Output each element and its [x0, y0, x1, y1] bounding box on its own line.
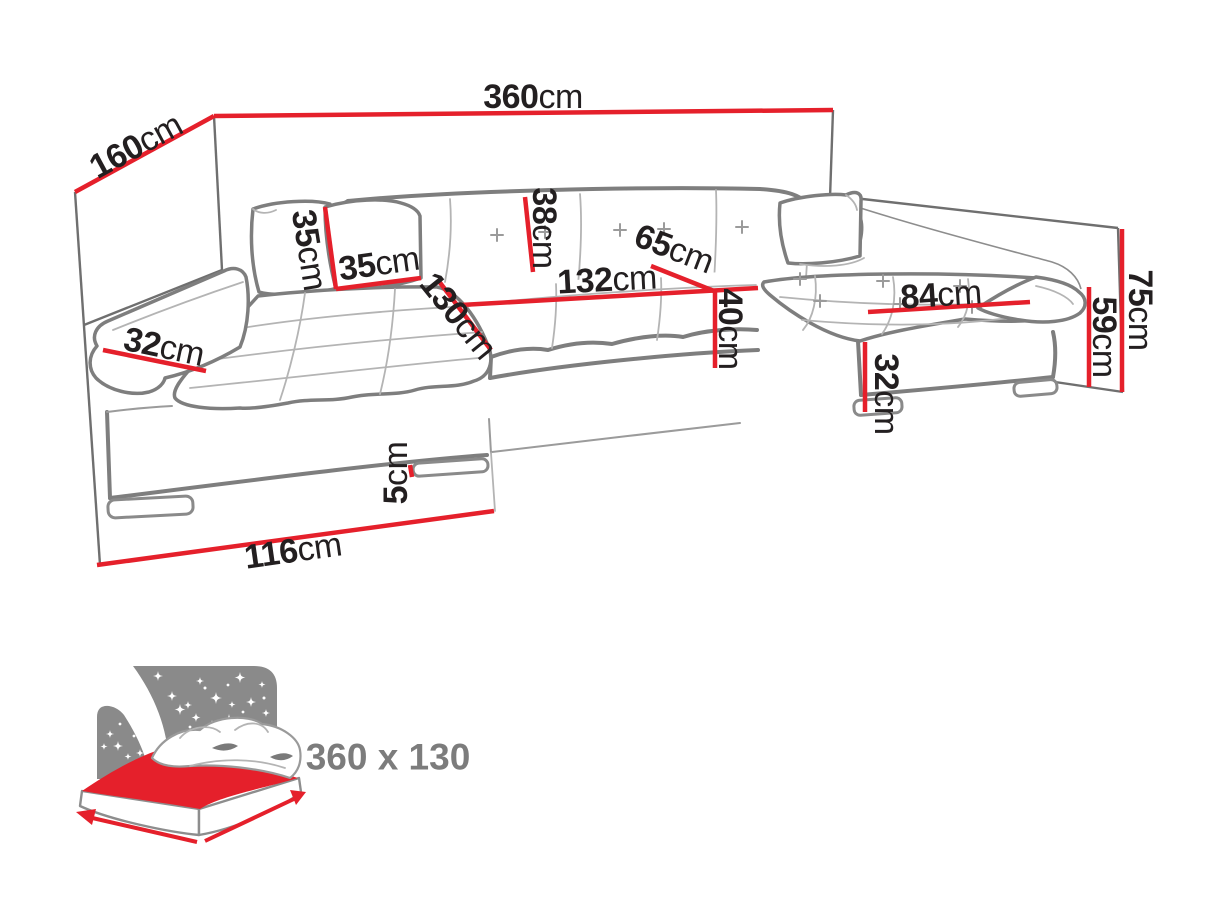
right-pillow [779, 193, 864, 266]
dim-label-seat-front-height: 40cm [711, 288, 749, 369]
sofa-drawing [90, 188, 1085, 518]
dim-label-left-depth: 160cm [83, 106, 189, 187]
dim-label-center-seat-length: 132cm [556, 258, 657, 301]
sleeping-area-size-label: 360 x 130 [306, 737, 471, 778]
sofa-leg [108, 496, 194, 518]
dim-label-backrest-height: 38cm [525, 187, 563, 268]
sofa-dimension-diagram-page: 360cm 160cm 35cm 35cm 130cm 38cm 132cm 6… [0, 0, 1214, 911]
sofa-leg [1013, 379, 1057, 397]
dim-label-left-end-width: 116cm [242, 525, 344, 576]
dim-label-right-back-height: 59cm [1085, 296, 1123, 377]
dim-label-leg-height: 5cm [377, 442, 415, 505]
dim-label-right-seat-length: 84cm [899, 273, 983, 317]
left-base [107, 406, 488, 518]
dim-label-total-height: 75cm [1121, 269, 1159, 350]
diagram-canvas: 360cm 160cm 35cm 35cm 130cm 38cm 132cm 6… [0, 0, 1214, 911]
bed-night-icon [76, 666, 306, 842]
dim-label-total-width: 360cm [483, 78, 583, 116]
dim-label-right-base-height: 32cm [867, 353, 905, 434]
